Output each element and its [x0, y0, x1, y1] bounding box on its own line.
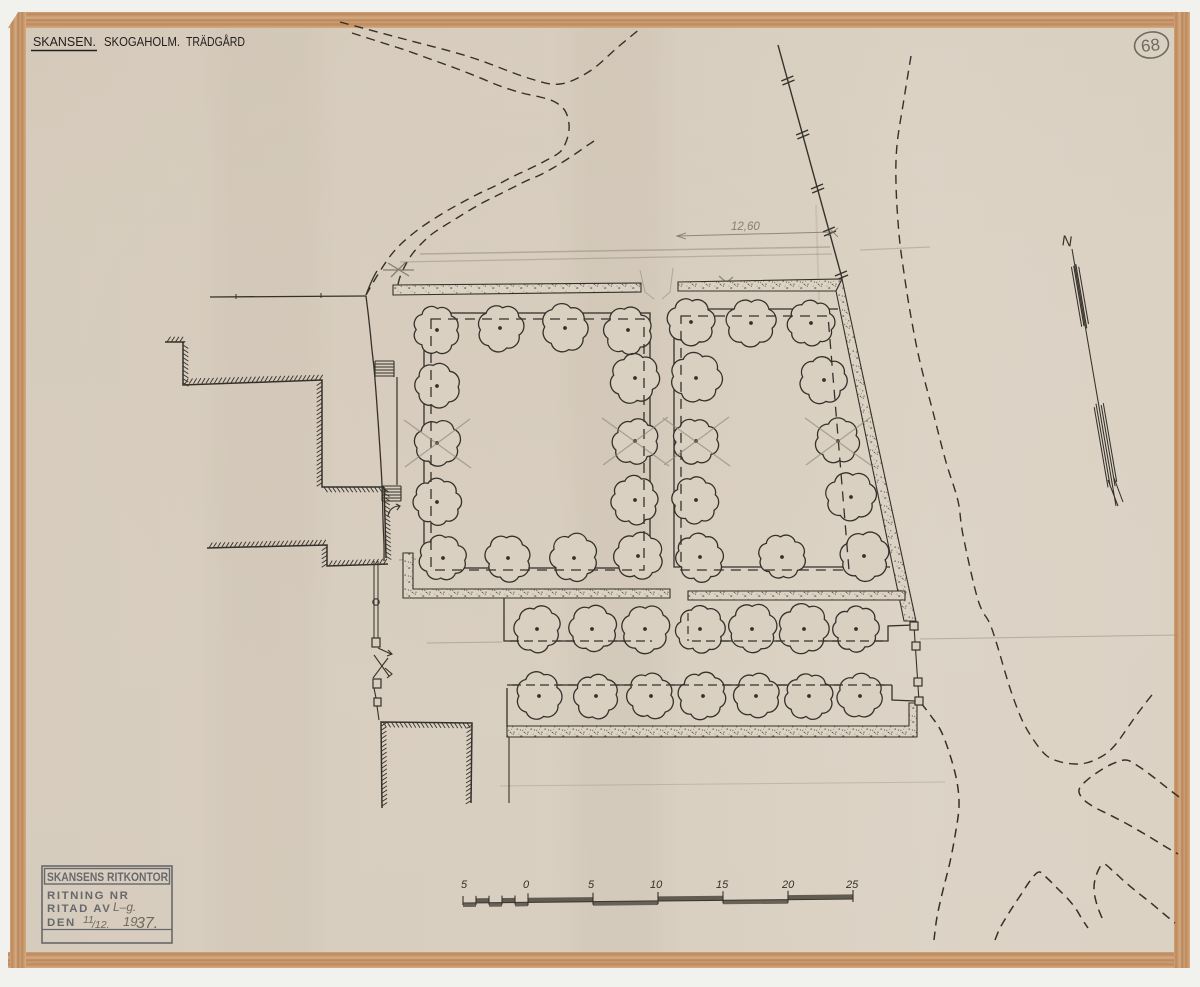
svg-text:SKANSENS RITKONTOR: SKANSENS RITKONTOR: [47, 870, 168, 884]
svg-text:5: 5: [461, 879, 468, 891]
svg-text:RITAD AV: RITAD AV: [47, 903, 111, 915]
svg-text:68: 68: [1140, 35, 1161, 56]
svg-text:TRÄDGÅRD: TRÄDGÅRD: [186, 34, 245, 49]
svg-text:L–g.: L–g.: [113, 900, 136, 914]
svg-text:25: 25: [845, 879, 859, 891]
svg-text:15: 15: [716, 879, 729, 891]
svg-text:SKANSEN.: SKANSEN.: [33, 35, 96, 49]
svg-text:/12.: /12.: [91, 919, 110, 931]
svg-text:SKOGAHOLM.: SKOGAHOLM.: [104, 35, 180, 49]
svg-text:0: 0: [523, 879, 530, 891]
svg-text:DEN: DEN: [47, 917, 76, 929]
svg-text:N: N: [1061, 233, 1074, 250]
svg-text:10: 10: [650, 879, 663, 891]
svg-text:20: 20: [781, 879, 795, 891]
svg-text:12,60: 12,60: [731, 221, 760, 233]
svg-text:37.: 37.: [136, 915, 158, 932]
svg-text:5: 5: [588, 879, 595, 891]
